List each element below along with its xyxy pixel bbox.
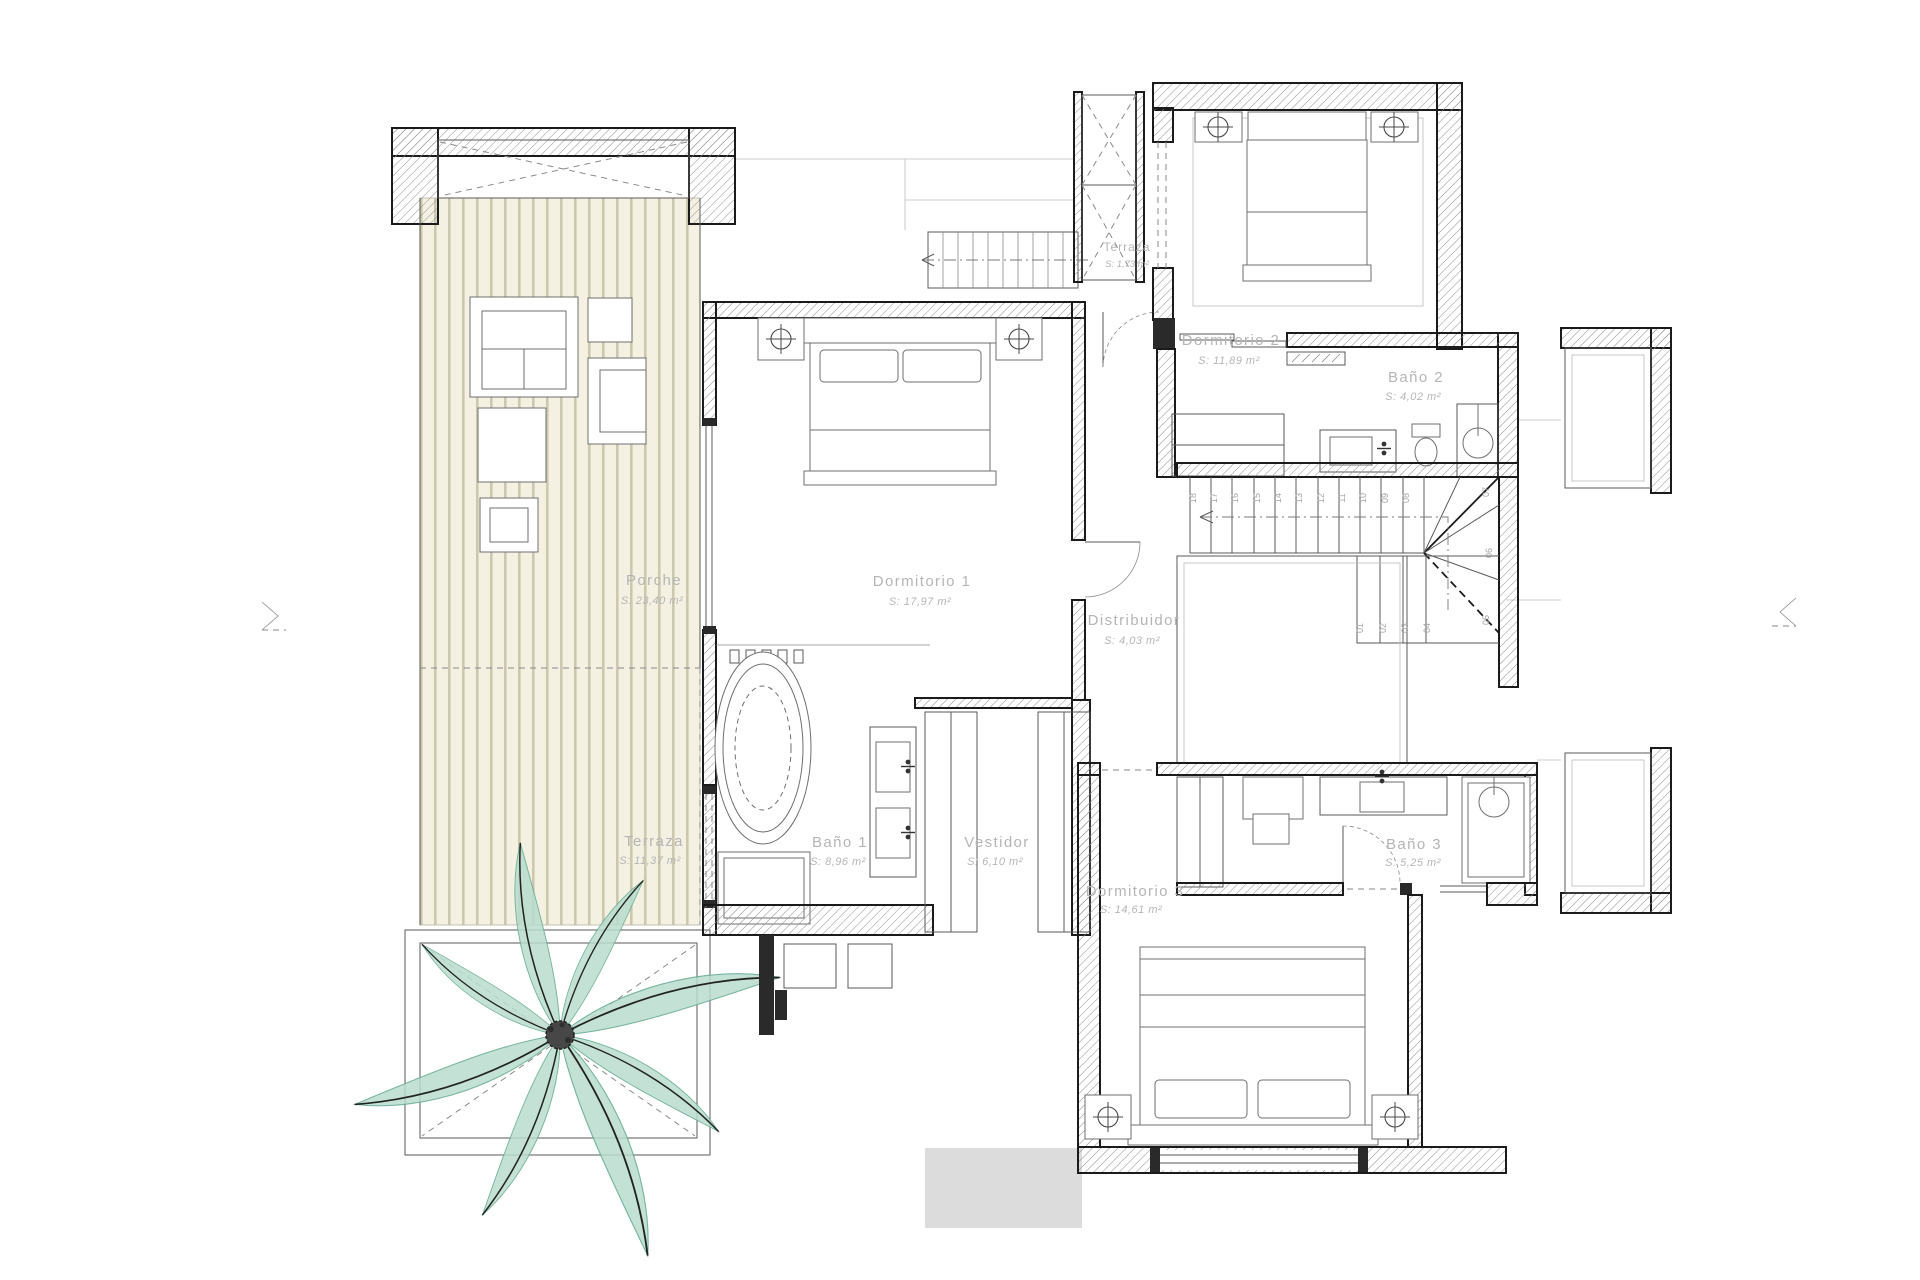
room-area: S: 6,10 m² — [967, 856, 1023, 868]
window-symbol — [1158, 142, 1166, 268]
step-number: 01 — [1355, 623, 1365, 633]
room-area: S: 11,89 m² — [1198, 355, 1260, 367]
step-number: 14 — [1273, 493, 1283, 503]
room-area: S: 17,97 m² — [889, 596, 951, 608]
step-number: 13 — [1294, 493, 1304, 503]
room-area: S: 23,40 m² — [621, 595, 683, 607]
room-label: Dormitorio 1 — [873, 573, 972, 590]
room-label: Baño 1 — [812, 834, 868, 851]
room-label: Terraza — [624, 833, 684, 850]
stair-treads-top — [1190, 477, 1424, 553]
door-arc — [1343, 826, 1400, 883]
step-number: 10 — [1358, 493, 1368, 503]
exterior-fixtures — [775, 944, 892, 1020]
bano1-vestidor-block: Baño 1 S: 8,96 m² Vestidor S: 6,10 m² — [703, 645, 1090, 1228]
bed-dormitorio-3 — [1085, 947, 1418, 1145]
room-label: Baño 2 — [1388, 369, 1444, 386]
stair-void — [1177, 556, 1407, 763]
room-label: Terraza — [1103, 240, 1150, 254]
room-label: Distribuidor — [1088, 612, 1181, 629]
vanity — [1320, 770, 1447, 815]
step-number: 04 — [1422, 623, 1432, 633]
step-number: 06 — [1484, 548, 1494, 558]
room-area: S: 11,37 m² — [619, 855, 681, 867]
step-number: 09 — [1380, 493, 1390, 503]
room-area: S: 14,61 m² — [1100, 904, 1162, 916]
window-symbol — [703, 418, 716, 634]
step-number: 05 — [1481, 615, 1491, 625]
desk — [1243, 777, 1303, 844]
step-number: 18 — [1188, 493, 1198, 503]
toilet — [1412, 424, 1440, 466]
dormitorio3-block: Dormitorio 3 S: 14,61 m² Baño 3 S: 5,25 … — [1078, 763, 1537, 1173]
step-number: 02 — [1378, 623, 1388, 633]
bed-dormitorio-1 — [758, 318, 1042, 485]
window-symbol — [1150, 1148, 1368, 1172]
room-label: Dormitorio 2 — [1182, 332, 1281, 349]
balcony-bottom-right — [1561, 748, 1671, 913]
section-marker-right — [1772, 598, 1796, 626]
room-area: S: 1,73 m² — [1105, 259, 1150, 270]
bathtub — [715, 652, 811, 844]
double-vanity — [870, 727, 916, 877]
floor-plan-canvas: Dormitorio 1 S: 17,97 m² — [0, 0, 1920, 1280]
step-number: 11 — [1337, 493, 1347, 502]
room-label: Baño 3 — [1386, 836, 1442, 853]
step-number: 12 — [1316, 493, 1326, 503]
lower-roof — [925, 1148, 1082, 1228]
bed-dormitorio-2 — [1195, 112, 1418, 281]
step-number: 03 — [1400, 623, 1410, 633]
step-number: 17 — [1209, 493, 1219, 503]
step-number: 07 — [1481, 487, 1491, 497]
porch-terrace-block — [349, 128, 783, 1263]
step-number: 08 — [1401, 493, 1411, 503]
wardrobe — [925, 712, 1090, 932]
room-area: S: 5,25 m² — [1385, 857, 1441, 869]
dormitorio2-block: Dormitorio 2 S: 11,89 m² — [1153, 83, 1462, 367]
room-area: S: 4,02 m² — [1385, 391, 1441, 403]
floor-plan-drawing: Dormitorio 1 S: 17,97 m² — [0, 0, 1920, 1280]
room-label: Dormitorio 3 — [1086, 883, 1185, 900]
door-arc — [1085, 542, 1140, 597]
shower — [1462, 777, 1530, 883]
section-marker-left — [262, 602, 286, 630]
balcony-top-right — [1561, 328, 1671, 493]
step-number: 16 — [1230, 493, 1240, 503]
step-number: 15 — [1252, 493, 1262, 503]
door-arc — [1103, 312, 1159, 367]
window-symbol — [1440, 886, 1487, 892]
stairs: 18 17 16 15 14 13 12 11 10 09 08 07 06 0… — [1088, 463, 1518, 763]
wardrobe — [1177, 777, 1223, 887]
room-label: Vestidor — [964, 834, 1029, 851]
wall-stub — [759, 935, 774, 1035]
stair-walk-line — [1200, 517, 1448, 610]
room-area: S: 4,03 m² — [1104, 635, 1160, 647]
room-area: S: 8,96 m² — [810, 856, 866, 868]
towel-radiator — [1287, 352, 1345, 365]
room-label: Porche — [626, 572, 682, 589]
